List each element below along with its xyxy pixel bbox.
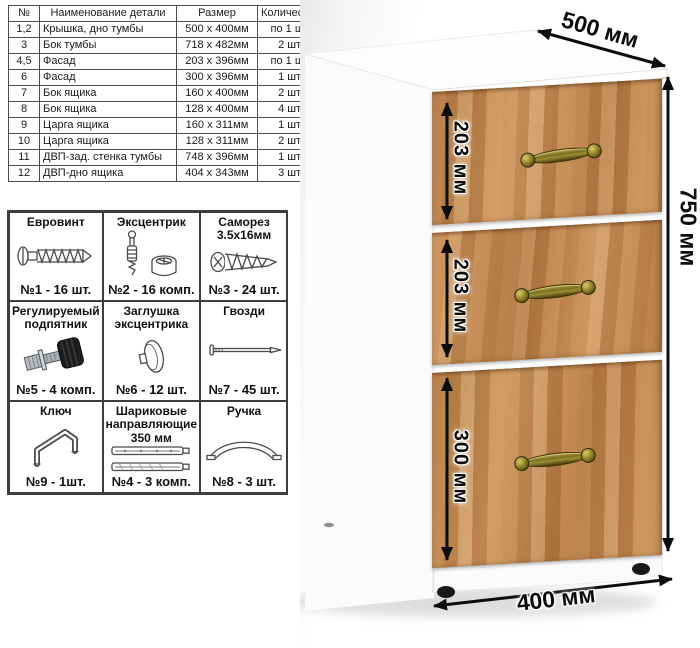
part-number-cell: 8 [9, 102, 40, 118]
part-number-cell: 4,5 [9, 54, 40, 70]
drawer1-dimension-label: 203 мм [449, 121, 472, 196]
cabinet-foot-left [437, 586, 455, 598]
hardware-title: Гвозди [223, 305, 265, 318]
part-size-cell: 404 х 343мм [177, 166, 258, 182]
handle-rosette [580, 279, 597, 296]
handle-rosette [580, 447, 597, 464]
header-size: Размер [177, 6, 258, 22]
handle-icon [203, 418, 285, 474]
part-size-cell: 160 х 311мм [177, 118, 258, 134]
hardware-item: Эксцентрик №2 - 16 комп. [103, 212, 200, 301]
header-number: № [9, 6, 40, 22]
drawer2-dimension-label: 203 мм [449, 259, 472, 334]
hex-key-icon [12, 418, 100, 474]
parts-table-row: 9Царга ящика160 х 311мм1 шт. [9, 118, 324, 134]
part-name-cell: Царга ящика [40, 134, 177, 150]
hardware-title: Заглушка эксцентрика [106, 305, 197, 332]
hardware-count: №7 - 45 шт. [209, 382, 280, 398]
hardware-count: №4 - 3 комп. [112, 474, 191, 490]
height-dimension-label: 750 мм [675, 188, 700, 267]
part-size-cell: 748 х 396мм [177, 150, 258, 166]
part-size-cell: 500 х 400мм [177, 22, 258, 38]
handle-rosette [586, 142, 603, 159]
hardware-item: Заглушка эксцентрика №6 - 12 шт. [103, 301, 200, 401]
hardware-count: №9 - 1шт. [26, 474, 86, 490]
header-name: Наименование детали [40, 6, 177, 22]
part-name-cell: Фасад [40, 54, 177, 70]
part-number-cell: 11 [9, 150, 40, 166]
part-name-cell: Царга ящика [40, 118, 177, 134]
parts-table-row: 4,5Фасад203 х 396ммпо 1 шт. [9, 54, 324, 70]
part-size-cell: 718 х 482мм [177, 38, 258, 54]
parts-table-header-row: № Наименование детали Размер Количество [9, 6, 324, 22]
hardware-item: Саморез 3.5х16мм №3 - 24 шт. [200, 212, 288, 301]
parts-table-row: 11ДВП-зад. стенка тумбы748 х 396мм1 шт. [9, 150, 324, 166]
hardware-item: Регулируемый подпятник №5 - 4 комп. [9, 301, 103, 401]
part-number-cell: 9 [9, 118, 40, 134]
euro-screw-icon [12, 229, 100, 282]
parts-table-row: 7Бок ящика160 х 400мм2 шт. [9, 86, 324, 102]
part-name-cell: ДВП-зад. стенка тумбы [40, 150, 177, 166]
parts-table-row: 12ДВП-дно ящика404 х 343мм3 шт. [9, 166, 324, 182]
cabinet-illustration: 500 мм 750 мм 400 мм 203 мм 203 мм 300 м… [300, 0, 700, 648]
part-name-cell: Бок тумбы [40, 38, 177, 54]
part-name-cell: Бок ящика [40, 102, 177, 118]
hardware-title: Ручка [227, 405, 261, 418]
part-size-cell: 128 х 311мм [177, 134, 258, 150]
hardware-grid: Евровинт №1 - 16 шт.Эксцентрик №2 - 16 к… [7, 210, 288, 495]
hardware-item: Шариковые направляющие 350 мм №4 - 3 ком… [103, 401, 200, 493]
part-size-cell: 203 х 396мм [177, 54, 258, 70]
hardware-item: Евровинт №1 - 16 шт. [9, 212, 103, 301]
drawer-slides-icon [106, 445, 197, 474]
parts-table: № Наименование детали Размер Количество … [8, 5, 324, 182]
part-name-cell: Фасад [40, 70, 177, 86]
drawer3-dimension-label: 300 мм [449, 430, 472, 505]
parts-table-header: № Наименование детали Размер Количество [9, 6, 324, 22]
parts-table-row: 6Фасад300 х 396мм1 шт. [9, 70, 324, 86]
part-number-cell: 3 [9, 38, 40, 54]
hardware-count: №2 - 16 комп. [108, 282, 195, 298]
adjustable-foot-icon [12, 332, 100, 382]
hardware-count: №3 - 24 шт. [209, 282, 280, 298]
part-name-cell: ДВП-дно ящика [40, 166, 177, 182]
cam-cover-icon [106, 332, 197, 382]
part-number-cell: 10 [9, 134, 40, 150]
assembly-instruction-sheet: { "parts_table": { "headers": ["№", "Наи… [0, 0, 700, 648]
hardware-title: Эксцентрик [117, 216, 186, 229]
parts-table-row: 3Бок тумбы718 х 482мм2 шт. [9, 38, 324, 54]
hardware-title: Регулируемый подпятник [12, 305, 100, 332]
parts-table-body: 1,2Крышка, дно тумбы500 х 400ммпо 1 шт.3… [9, 22, 324, 182]
cabinet-left-side [305, 54, 434, 611]
cabinet-foot-right [632, 563, 650, 575]
hardware-title: Шариковые направляющие 350 мм [106, 405, 197, 445]
parts-table-row: 10Царга ящика128 х 311мм2 шт. [9, 134, 324, 150]
hardware-count: №6 - 12 шт. [116, 382, 187, 398]
part-name-cell: Бок ящика [40, 86, 177, 102]
part-size-cell: 128 х 400мм [177, 102, 258, 118]
hardware-item: Ключ №9 - 1шт. [9, 401, 103, 493]
hardware-count: №5 - 4 комп. [16, 382, 95, 398]
self-tapping-screw-icon [203, 243, 285, 282]
parts-table-row: 1,2Крышка, дно тумбы500 х 400ммпо 1 шт. [9, 22, 324, 38]
part-number-cell: 7 [9, 86, 40, 102]
part-number-cell: 12 [9, 166, 40, 182]
hardware-count: №1 - 16 шт. [20, 282, 91, 298]
eccentric-cam-icon [106, 229, 197, 282]
hardware-title: Саморез 3.5х16мм [203, 216, 285, 243]
hardware-count: №8 - 3 шт. [212, 474, 276, 490]
hardware-item: Ручка №8 - 3 шт. [200, 401, 288, 493]
part-size-cell: 300 х 396мм [177, 70, 258, 86]
part-name-cell: Крышка, дно тумбы [40, 22, 177, 38]
part-number-cell: 6 [9, 70, 40, 86]
parts-table-row: 8Бок ящика128 х 400мм4 шт. [9, 102, 324, 118]
part-size-cell: 160 х 400мм [177, 86, 258, 102]
cabinet-foot-back [324, 523, 334, 527]
part-number-cell: 1,2 [9, 22, 40, 38]
hardware-title: Евровинт [27, 216, 85, 229]
hardware-title: Ключ [40, 405, 72, 418]
hardware-item: Гвозди №7 - 45 шт. [200, 301, 288, 401]
nail-icon [203, 318, 285, 382]
